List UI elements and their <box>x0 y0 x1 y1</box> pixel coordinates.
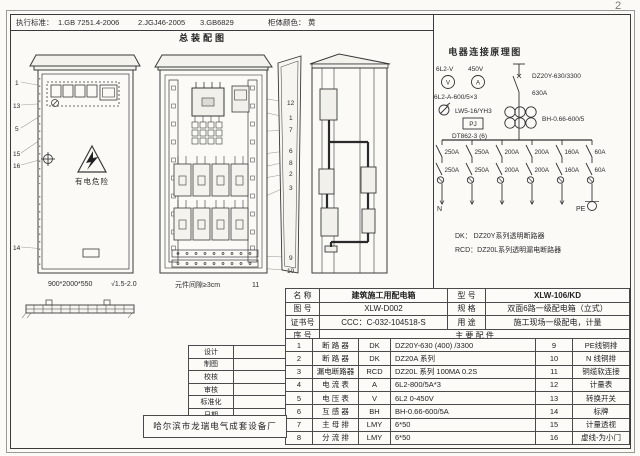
branch-circuit-3 <box>496 140 504 205</box>
ammeter-model-label: 6L2-A-600/5×3 <box>434 94 478 101</box>
voltage-label: 450V <box>468 66 484 73</box>
info-label-cert-no: 证书号 <box>286 316 320 330</box>
branch2-dk-rating: 250A <box>475 149 490 156</box>
schematic-title: 电器连接原理图 <box>448 46 522 57</box>
branch4-rcd-rating: 200A <box>535 167 550 174</box>
parts-row-2: 2断 路 器 DKDZ20A 系列 10N 线铜排 <box>286 352 630 365</box>
parts-row-1: 1断 路 器 DKDZ20Y-630 (400) /3300 9PE线铜排 <box>286 339 630 352</box>
plate-thickness: √1.5-2.0 <box>111 280 137 288</box>
branch6-dk-rating: 60A <box>595 149 607 156</box>
main-breaker-model-label: DZ20Y-630/3300 <box>532 73 581 80</box>
info-value-model: XLW-106/KD <box>486 289 630 303</box>
cabinet-side-view <box>303 46 395 281</box>
callout-7: 7 <box>289 127 293 134</box>
side-cabinet-roof <box>310 54 390 64</box>
parts-row-6: 6互 感 器 BHBH-0.66-600/5A 14标牌 <box>286 405 630 418</box>
cabinet-front-view: 1 13 5 15 16 14 有电危险 900*2000*550 √1.5-2… <box>12 46 148 292</box>
cabinet-internal-view: 12 1 7 6 8 2 3 9 10 元件间隙≥3cm 11 <box>148 46 308 292</box>
standard-2: 2.JGJ46-2005 <box>138 15 185 30</box>
component-gap-note: 元件间隙≥3cm <box>175 280 220 289</box>
branch3-rcd-rating: 200A <box>505 167 520 174</box>
callout-2: 2 <box>289 171 293 178</box>
parts-row-8: 8分 流 排 LMY6*50 16虚线-为小门 <box>286 431 630 444</box>
info-label-drawing-no: 图 号 <box>286 302 320 316</box>
manufacturer-name: 哈尔滨市龙瑞电气成套设备厂 <box>143 415 287 438</box>
tb-standardization: 标准化 <box>189 396 234 409</box>
legend-rcd: RCD：DZ20L系列透明漏电断路器 <box>455 245 561 254</box>
product-info-table: 名 称 建筑施工用配电箱 型 号 XLW-106/KD 图 号 XLW-D002… <box>285 288 630 343</box>
parts-list-table: 1断 路 器 DKDZ20Y-630 (400) /3300 9PE线铜排 2断… <box>285 338 630 445</box>
voltmeter-model-label: 6L2-V <box>436 66 454 73</box>
callout-15: 15 <box>13 151 21 158</box>
tb-draft: 制图 <box>189 358 234 371</box>
neutral-label: N <box>437 206 442 213</box>
earth-electrode-icon <box>585 202 599 211</box>
parts-row-5: 5电 压 表 V6L2 0-450V 13转换开关 <box>286 392 630 405</box>
front-roof-band <box>34 66 136 70</box>
switch-model-label: LW5-16/YH3 <box>455 108 492 115</box>
parts-row-3: 3漏电断路器 RCDDZ20L 系列 100MA 0.2S 11铜缆软连接 <box>286 365 630 378</box>
current-transformers-icon <box>505 107 536 128</box>
assembly-title: 总装配图 <box>158 31 248 44</box>
main-breaker-symbol <box>513 64 525 140</box>
main-breaker-rating-label: 630A <box>532 90 548 97</box>
voltmeter-letter: V <box>446 81 450 87</box>
branch6-rcd-rating: 60A <box>595 167 607 174</box>
parts-row-4: 4电 流 表 A6L2-800/5A*3 12计量表 <box>286 378 630 391</box>
ct-model-label: BH-0.66-600/5 <box>542 116 585 123</box>
cabinet-dimensions: 900*2000*550 <box>48 281 92 288</box>
callout-16: 16 <box>13 163 21 170</box>
wiring-schematic: 电器连接原理图 <box>433 14 630 288</box>
callout-3: 3 <box>289 185 293 192</box>
branch-circuit-6 <box>586 140 594 201</box>
cabinet-color-value: 黄 <box>308 15 316 30</box>
callout-5: 5 <box>15 126 19 133</box>
front-cabinet-roof <box>30 55 140 66</box>
legend-dk: DK： DZ20Y系列透明断路器 <box>455 231 544 240</box>
callout-6: 6 <box>289 148 293 155</box>
info-label-model: 型 号 <box>448 289 486 303</box>
branch2-rcd-rating: 250A <box>475 167 490 174</box>
standard-1: 1.GB 7251.4-2006 <box>58 15 119 30</box>
standards-label: 执行标准： <box>16 15 54 30</box>
front-callouts: 1 13 5 15 16 14 <box>13 80 21 252</box>
electric-danger-warning-text: 有电危险 <box>75 176 109 186</box>
info-label-spec: 规 格 <box>448 302 486 316</box>
callout-8: 8 <box>289 160 293 167</box>
branch5-dk-rating: 160A <box>565 149 580 156</box>
callout-13: 13 <box>13 103 21 110</box>
branch4-dk-rating: 200A <box>535 149 550 156</box>
callout-9: 9 <box>289 255 293 262</box>
callout-11: 11 <box>252 282 259 289</box>
branch-circuit-4 <box>526 140 534 205</box>
info-value-cert-no: CCC：C-032-104518-S <box>320 316 448 330</box>
callout-1: 1 <box>289 115 293 122</box>
info-label-usage: 用 途 <box>448 316 486 330</box>
callout-14: 14 <box>13 245 21 252</box>
callout-1: 1 <box>15 80 19 87</box>
branch-circuit-2 <box>466 140 474 205</box>
cabinet-color-label: 柜体颜色： <box>268 15 306 30</box>
info-value-usage: 施工现场一级配电，计量 <box>486 316 630 330</box>
tb-review: 审核 <box>189 383 234 396</box>
tb-design: 设计 <box>189 346 234 359</box>
parts-row-7: 7主 母 排 LMY6*50 15计量透视 <box>286 418 630 431</box>
branch5-rcd-rating: 160A <box>565 167 580 174</box>
info-value-drawing-no: XLW-D002 <box>320 302 448 316</box>
tb-check: 校核 <box>189 371 234 384</box>
branch3-dk-rating: 200A <box>505 149 520 156</box>
pe-label: PE <box>576 206 586 213</box>
busbar-detail-view <box>22 296 142 322</box>
callout-12: 12 <box>287 100 295 107</box>
info-value-spec: 双面6路一级配电箱（立式） <box>486 302 630 316</box>
ammeter-letter: A <box>476 81 480 87</box>
energy-meter-model-label: DT862-3 (6) <box>452 133 487 140</box>
callout-10: 10 <box>287 268 295 275</box>
internal-cabinet-roof <box>155 55 272 67</box>
title-bar: 执行标准： 1.GB 7251.4-2006 2.JGJ46-2005 3.GB… <box>11 15 433 31</box>
info-value-name: 建筑施工用配电箱 <box>320 289 448 303</box>
standard-3: 3.GB6829 <box>200 15 234 30</box>
branch1-dk-rating: 250A <box>445 149 460 156</box>
pj-label: PJ <box>469 121 477 128</box>
branch-circuit-1 <box>436 140 444 205</box>
drawing-sheet: 2 执行标准： 1.GB 7251.4-2006 2.JGJ46-2005 3.… <box>0 0 640 456</box>
branch-circuit-5 <box>556 140 564 205</box>
info-label-name: 名 称 <box>286 289 320 303</box>
branch1-rcd-rating: 250A <box>445 167 460 174</box>
title-block: 设计 制图 校核 审核 标准化 日期 <box>188 345 286 422</box>
